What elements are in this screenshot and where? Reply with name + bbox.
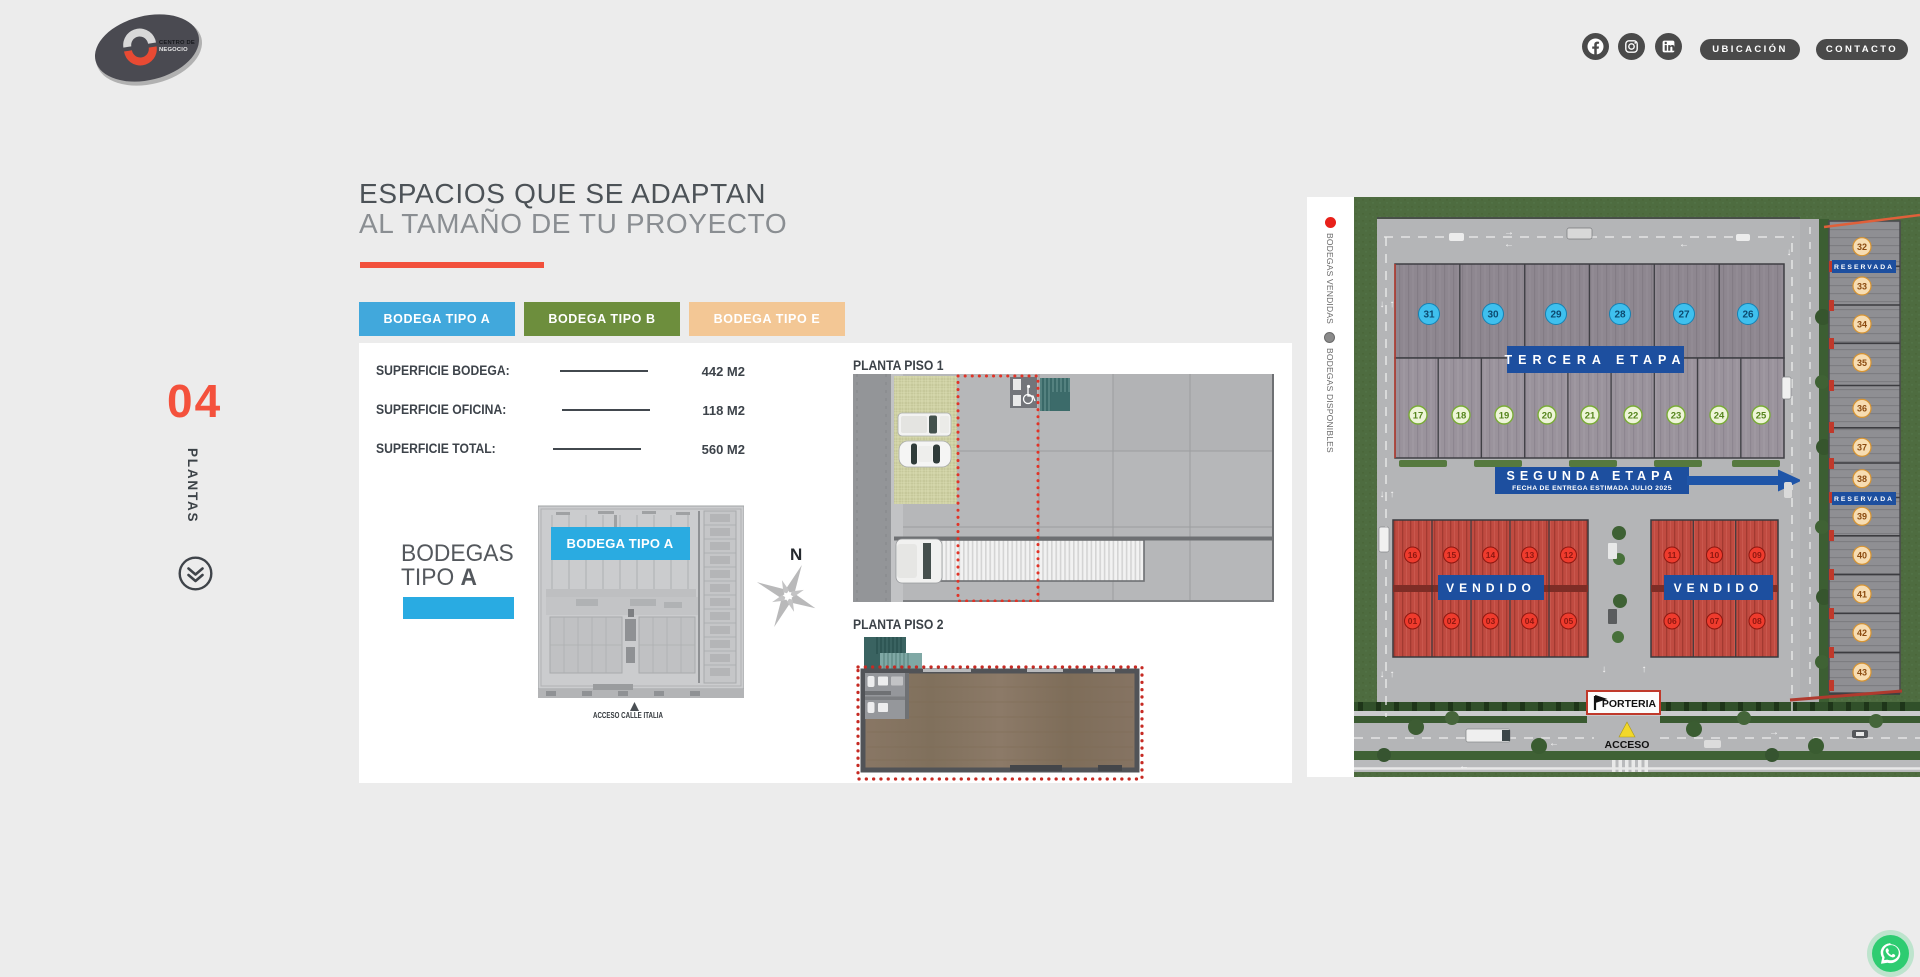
svg-text:28: 28	[1614, 310, 1626, 321]
svg-text:RESERVADA: RESERVADA	[1834, 264, 1894, 271]
svg-text:PORTERIA: PORTERIA	[1602, 698, 1657, 710]
svg-text:04: 04	[1525, 616, 1535, 626]
svg-text:07: 07	[1710, 616, 1720, 626]
svg-text:↓: ↓	[1787, 247, 1792, 258]
svg-text:09: 09	[1752, 550, 1762, 560]
svg-text:↓: ↓	[1380, 669, 1385, 680]
svg-text:32: 32	[1857, 242, 1867, 252]
svg-text:VENDIDO: VENDIDO	[1446, 581, 1536, 595]
svg-text:↓: ↓	[1380, 299, 1385, 310]
svg-text:22: 22	[1628, 411, 1639, 422]
svg-text:31: 31	[1423, 310, 1435, 321]
svg-text:16: 16	[1408, 550, 1418, 560]
svg-text:06: 06	[1667, 616, 1677, 626]
svg-text:NEGOCIO: NEGOCIO	[159, 47, 188, 53]
svg-text:19: 19	[1499, 411, 1510, 422]
svg-text:29: 29	[1550, 310, 1562, 321]
svg-text:←: ←	[1459, 761, 1469, 772]
svg-text:TERCERA ETAPA: TERCERA ETAPA	[1505, 353, 1687, 367]
svg-text:12: 12	[1564, 550, 1574, 560]
svg-text:10: 10	[1710, 550, 1720, 560]
svg-text:↑: ↑	[1390, 299, 1395, 310]
svg-text:↓: ↓	[1380, 489, 1385, 500]
svg-text:14: 14	[1486, 550, 1496, 560]
svg-text:40: 40	[1857, 551, 1867, 561]
svg-text:02: 02	[1447, 616, 1457, 626]
svg-text:11: 11	[1668, 550, 1677, 560]
svg-text:33: 33	[1857, 281, 1867, 291]
svg-text:↑: ↑	[1390, 489, 1395, 500]
svg-text:24: 24	[1714, 411, 1725, 422]
svg-text:20: 20	[1542, 411, 1553, 422]
svg-text:←: ←	[1504, 239, 1514, 250]
svg-text:15: 15	[1447, 550, 1457, 560]
svg-text:38: 38	[1857, 474, 1867, 484]
svg-text:SEGUNDA ETAPA: SEGUNDA ETAPA	[1506, 469, 1677, 483]
svg-text:34: 34	[1857, 319, 1867, 329]
svg-text:08: 08	[1752, 616, 1762, 626]
svg-text:18: 18	[1456, 411, 1467, 422]
svg-text:ACCESO CALLE ITALIA: ACCESO CALLE ITALIA	[593, 710, 663, 720]
svg-text:35: 35	[1857, 358, 1867, 368]
svg-text:↓: ↓	[1602, 664, 1607, 675]
svg-text:30: 30	[1487, 310, 1499, 321]
svg-text:N: N	[790, 545, 802, 564]
svg-text:→: →	[1769, 727, 1779, 738]
svg-text:37: 37	[1857, 443, 1867, 453]
svg-text:↑: ↑	[1642, 664, 1647, 675]
svg-text:13: 13	[1525, 550, 1535, 560]
svg-text:←: ←	[1679, 239, 1689, 250]
svg-text:41: 41	[1857, 589, 1867, 599]
svg-text:27: 27	[1678, 310, 1690, 321]
svg-text:26: 26	[1742, 310, 1754, 321]
svg-text:42: 42	[1857, 628, 1867, 638]
svg-text:05: 05	[1564, 616, 1574, 626]
svg-text:CENTRO DE: CENTRO DE	[159, 40, 195, 46]
svg-text:17: 17	[1413, 411, 1424, 422]
svg-text:VENDIDO: VENDIDO	[1674, 581, 1764, 595]
svg-text:↑: ↑	[1390, 669, 1395, 680]
svg-text:03: 03	[1486, 616, 1496, 626]
svg-text:25: 25	[1756, 411, 1767, 422]
svg-text:BODEGA TIPO A: BODEGA TIPO A	[567, 536, 674, 551]
svg-text:FECHA DE ENTREGA ESTIMADA JULI: FECHA DE ENTREGA ESTIMADA JULIO 2025	[1512, 485, 1672, 492]
svg-text:39: 39	[1857, 512, 1867, 522]
svg-text:23: 23	[1671, 411, 1682, 422]
svg-text:01: 01	[1408, 616, 1418, 626]
svg-text:43: 43	[1857, 667, 1867, 677]
svg-text:36: 36	[1857, 404, 1867, 414]
svg-text:21: 21	[1585, 411, 1596, 422]
svg-text:→: →	[1504, 227, 1514, 238]
svg-text:RESERVADA: RESERVADA	[1834, 496, 1894, 503]
svg-text:←: ←	[1549, 738, 1559, 749]
svg-text:ACCESO: ACCESO	[1605, 739, 1650, 751]
